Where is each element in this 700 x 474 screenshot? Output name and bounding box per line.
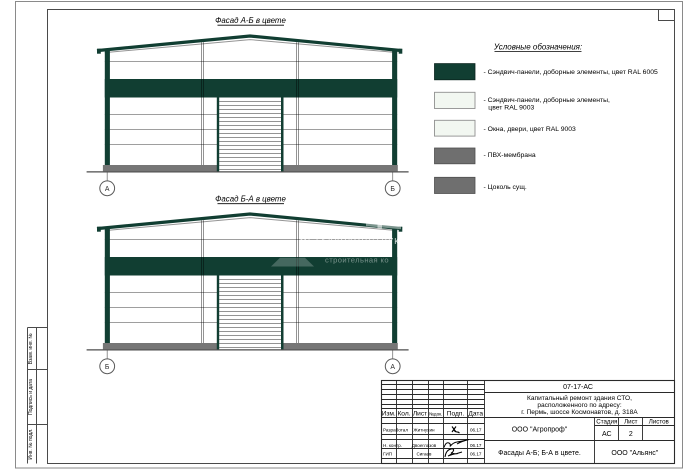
- svg-text:Б: Б: [390, 186, 395, 193]
- svg-text:- Окна, двери, цвет RAL 9003: - Окна, двери, цвет RAL 9003: [484, 126, 577, 133]
- svg-text:ООО "Альянс": ООО "Альянс": [611, 450, 658, 457]
- svg-text:Фасад А-Б в цвете: Фасад А-Б в цвете: [215, 16, 286, 25]
- svg-text:цвет RAL 9003: цвет RAL 9003: [488, 104, 534, 111]
- svg-text:- ПВХ-мембрана: - ПВХ-мембрана: [484, 151, 536, 159]
- svg-text:Капитальный ремонт здания СТО,: Капитальный ремонт здания СТО,: [527, 394, 632, 402]
- svg-text:Стадия: Стадия: [596, 419, 617, 426]
- svg-text:2: 2: [629, 431, 633, 438]
- svg-text:Сигаев: Сигаев: [416, 451, 432, 456]
- svg-text:06.17: 06.17: [470, 427, 482, 432]
- svg-text:Двоеглазов: Двоеглазов: [412, 443, 437, 448]
- svg-text:ГИП: ГИП: [383, 451, 392, 456]
- svg-text:07-17-АС: 07-17-АС: [563, 384, 593, 391]
- svg-text:№док.: №док.: [429, 412, 442, 417]
- svg-text:Условные обозначения:: Условные обозначения:: [493, 42, 582, 51]
- svg-text:- Сэндвич-панели, доборные эле: - Сэндвич-панели, доборные элементы, цве…: [484, 68, 659, 76]
- svg-text:Кол.: Кол.: [397, 411, 410, 418]
- svg-text:- Цоколь сущ.: - Цоколь сущ.: [484, 184, 527, 191]
- svg-text:Листов: Листов: [649, 419, 670, 426]
- svg-text:г. Пермь, шоссе Космонавтов, д: г. Пермь, шоссе Космонавтов, д. 318А: [521, 409, 638, 416]
- svg-text:Инв. № подл.: Инв. № подл.: [28, 428, 34, 459]
- svg-text:06.17: 06.17: [470, 443, 482, 448]
- svg-text:А: А: [390, 364, 395, 371]
- svg-text:Лист: Лист: [624, 419, 638, 426]
- svg-text:Подп.: Подп.: [447, 411, 465, 418]
- svg-text:Дата: Дата: [468, 411, 483, 418]
- svg-text:Н. контр.: Н. контр.: [383, 443, 402, 448]
- svg-text:Изм.: Изм.: [382, 411, 396, 418]
- svg-text:Лист: Лист: [413, 411, 427, 418]
- svg-text:АС: АС: [602, 431, 612, 438]
- svg-text:строительная ко: строительная ко: [325, 256, 389, 265]
- svg-text:- Сэндвич-панели, доборные эле: - Сэндвич-панели, доборные элементы,: [484, 96, 611, 104]
- svg-text:ООО "Агропроф": ООО "Агропроф": [512, 427, 568, 434]
- svg-text:Разработал: Разработал: [383, 427, 408, 432]
- svg-text:Фасад Б-А в цвете: Фасад Б-А в цвете: [215, 195, 286, 204]
- svg-text:Житнухин: Житнухин: [413, 427, 435, 432]
- svg-text:МЕТАЛЛОКОНСТРУКЦИЯ: МЕТАЛЛОКОНСТРУКЦИЯ: [300, 237, 422, 246]
- svg-text:А: А: [105, 186, 110, 193]
- svg-text:Подпись и дата: Подпись и дата: [28, 379, 34, 415]
- svg-text:Взам. инв. №: Взам. инв. №: [28, 333, 34, 364]
- svg-text:Б: Б: [105, 364, 110, 371]
- svg-text:расположенного по адресу:: расположенного по адресу:: [537, 402, 622, 409]
- svg-text:06.17: 06.17: [470, 451, 482, 456]
- svg-text:Фасады А-Б; Б-А в цвете.: Фасады А-Б; Б-А в цвете.: [498, 450, 581, 457]
